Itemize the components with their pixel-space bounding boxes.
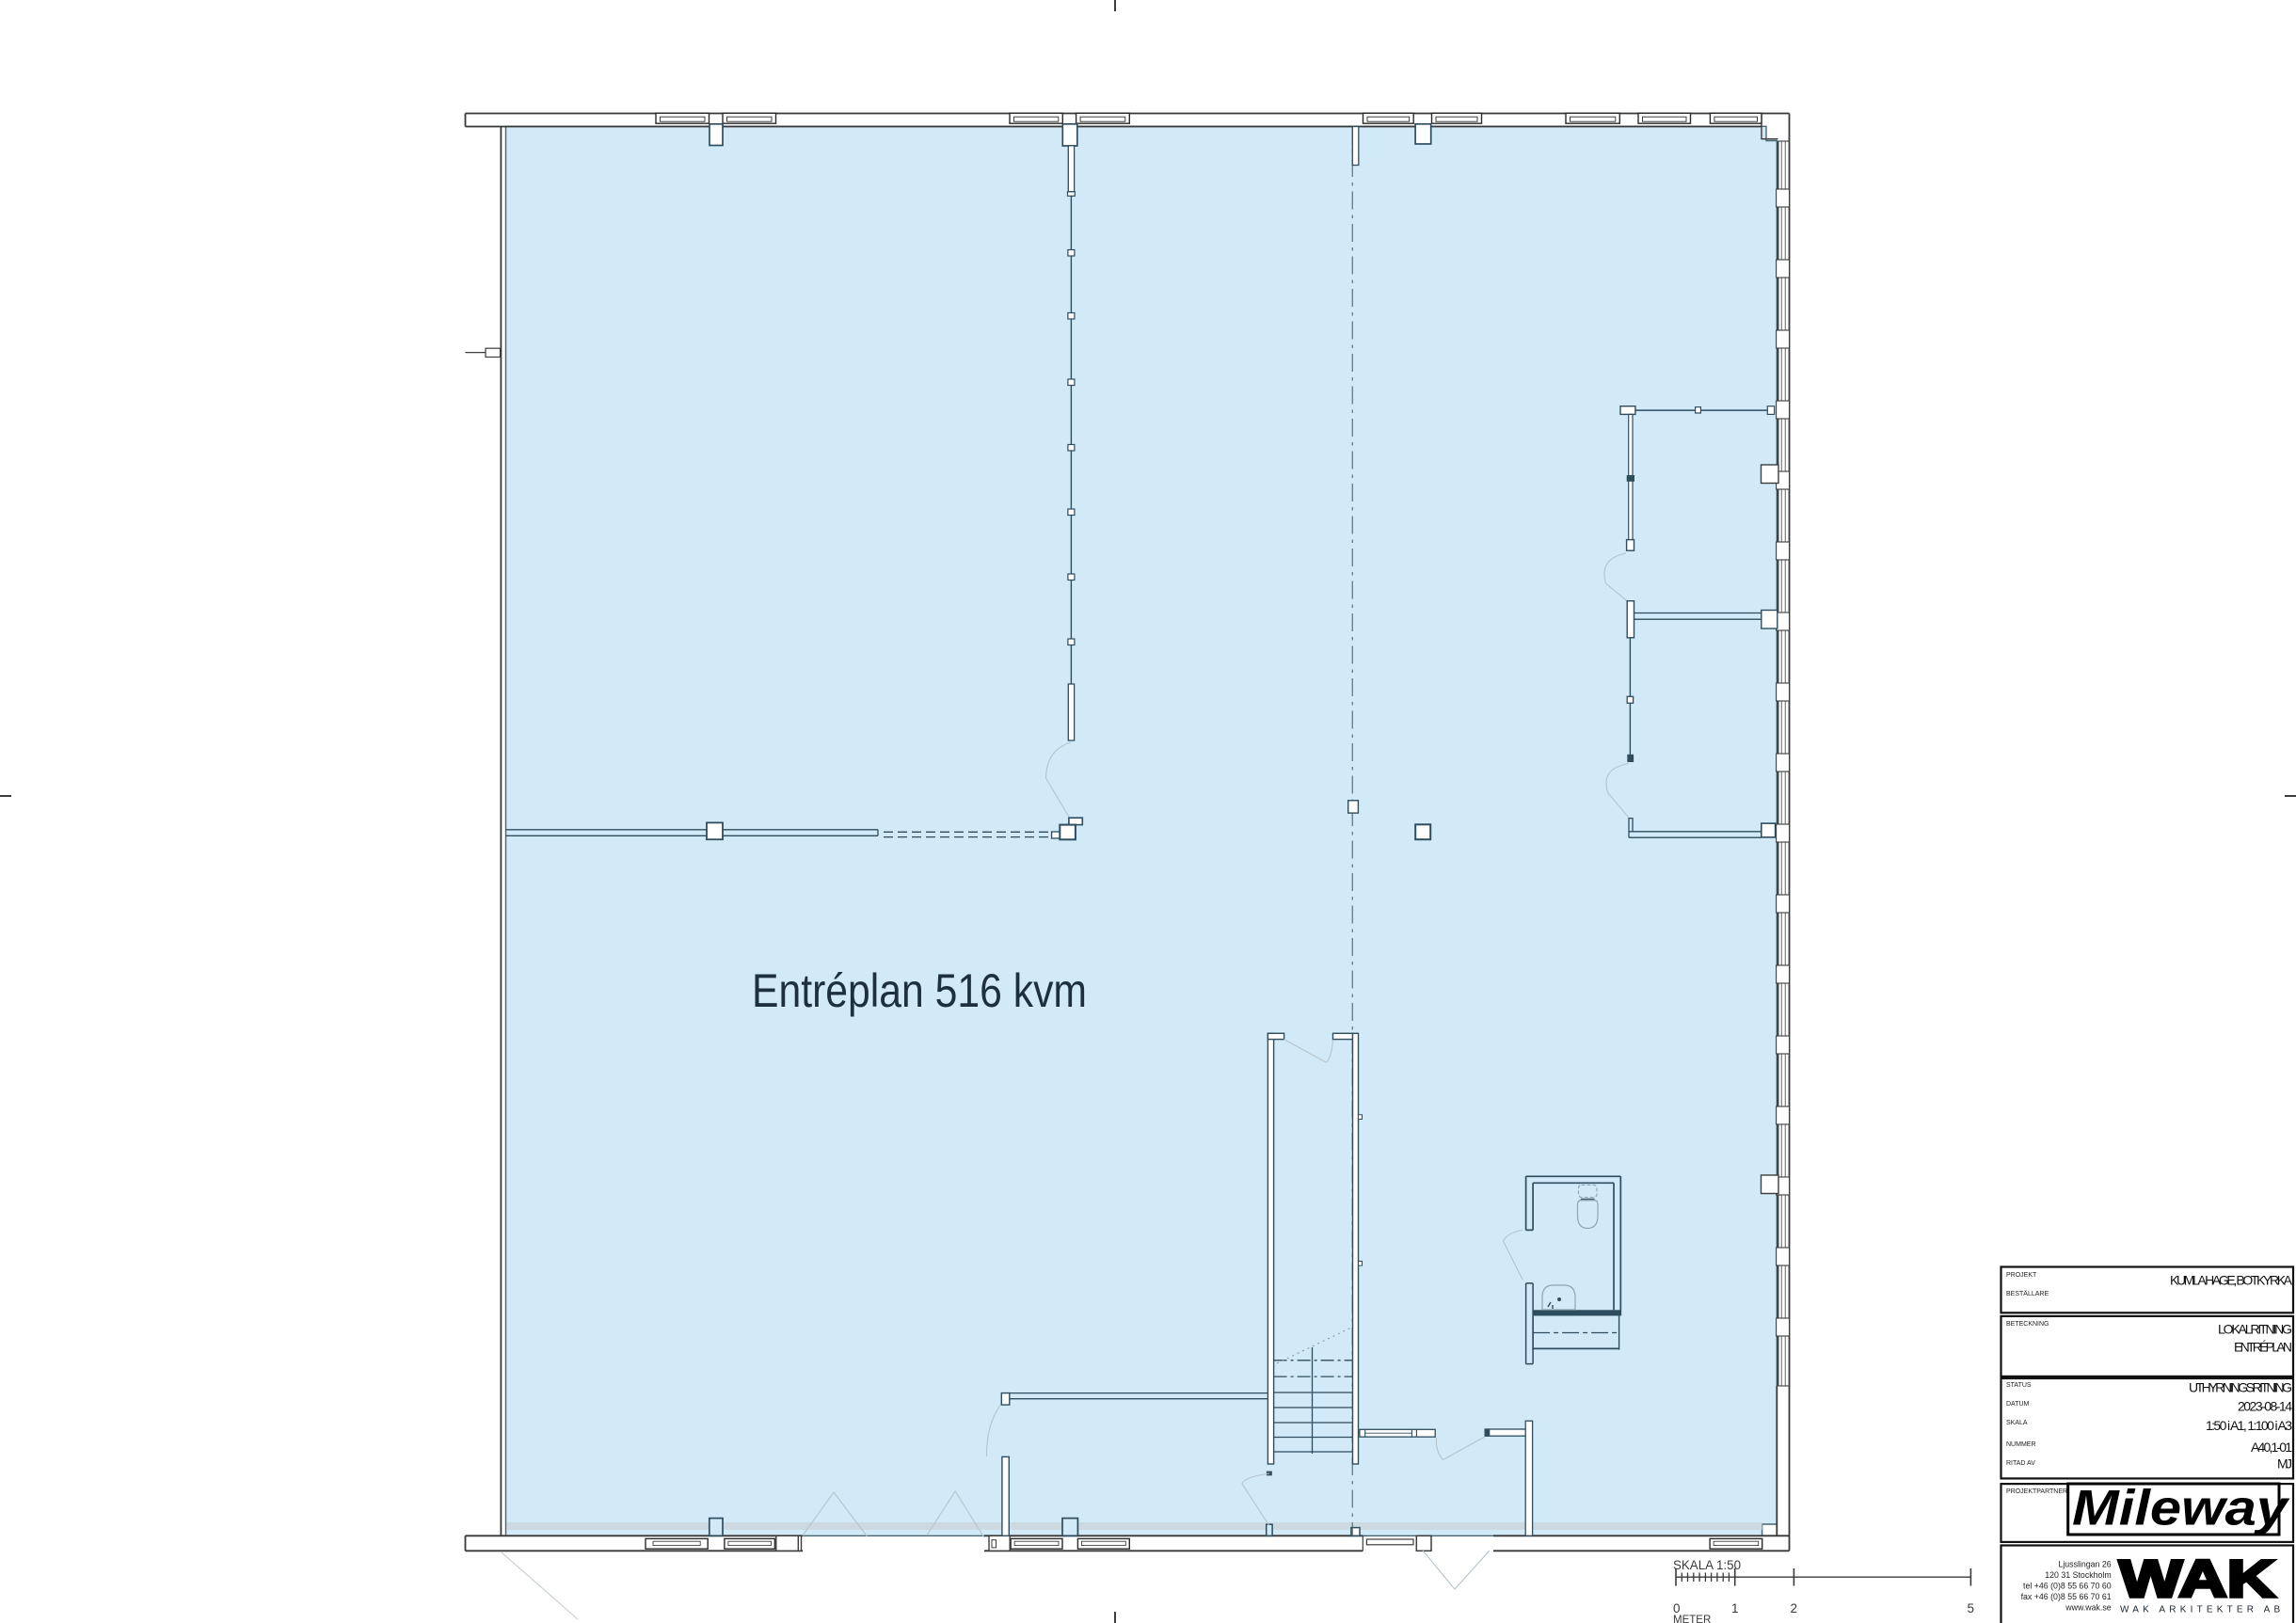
svg-text:A40,1-01: A40,1-01 bbox=[2251, 1440, 2292, 1455]
svg-text:UTHYRNINGSRITNING: UTHYRNINGSRITNING bbox=[2189, 1380, 2292, 1395]
svg-text:ENTRÉPLAN: ENTRÉPLAN bbox=[2234, 1340, 2292, 1355]
svg-text:RITAD AV: RITAD AV bbox=[2006, 1460, 2035, 1467]
svg-text:PROJEKT: PROJEKT bbox=[2006, 1272, 2037, 1279]
svg-text:BETECKNING: BETECKNING bbox=[2006, 1321, 2049, 1328]
svg-text:Entréplan 516 kvm: Entréplan 516 kvm bbox=[752, 964, 1087, 1017]
svg-text:www.wak.se: www.wak.se bbox=[2065, 1603, 2112, 1613]
svg-text:SKALA: SKALA bbox=[2006, 1420, 2028, 1426]
svg-text:2023-08-14: 2023-08-14 bbox=[2238, 1399, 2292, 1414]
svg-text:tel +46 (0)8 55 66 70 60: tel +46 (0)8 55 66 70 60 bbox=[2023, 1582, 2112, 1591]
svg-text:MJ: MJ bbox=[2277, 1456, 2292, 1472]
svg-text:1: 1 bbox=[1731, 1601, 1739, 1615]
svg-text:2: 2 bbox=[1791, 1601, 1798, 1615]
svg-text:1:50 i A1, 1:100 i A3: 1:50 i A1, 1:100 i A3 bbox=[2206, 1418, 2292, 1433]
svg-text:WAK ARKITEKTER AB: WAK ARKITEKTER AB bbox=[2120, 1605, 2284, 1615]
svg-text:KUMLA HAGE, BOTKYRKA: KUMLA HAGE, BOTKYRKA bbox=[2170, 1273, 2293, 1288]
svg-text:METER: METER bbox=[1673, 1615, 1711, 1623]
svg-text:PROJEKTPARTNER: PROJEKTPARTNER bbox=[2006, 1488, 2067, 1495]
svg-text:LOKALRITNING: LOKALRITNING bbox=[2218, 1322, 2292, 1337]
svg-text:5: 5 bbox=[1968, 1601, 1975, 1615]
svg-text:fax +46 (0)8 55 66 70 61: fax +46 (0)8 55 66 70 61 bbox=[2021, 1592, 2112, 1601]
svg-text:SKALA 1:50: SKALA 1:50 bbox=[1673, 1558, 1741, 1572]
svg-text:0: 0 bbox=[1673, 1601, 1681, 1615]
svg-text:BESTÄLLARE: BESTÄLLARE bbox=[2006, 1290, 2049, 1297]
svg-text:120 31 Stockholm: 120 31 Stockholm bbox=[2045, 1570, 2111, 1580]
svg-text:STATUS: STATUS bbox=[2006, 1382, 2032, 1389]
svg-text:WAK: WAK bbox=[2119, 1549, 2275, 1608]
svg-text:DATUM: DATUM bbox=[2006, 1401, 2030, 1408]
svg-text:Mileway: Mileway bbox=[2072, 1481, 2290, 1536]
svg-text:NUMMER: NUMMER bbox=[2006, 1441, 2036, 1448]
svg-text:Ljusslingan 26: Ljusslingan 26 bbox=[2058, 1560, 2111, 1569]
